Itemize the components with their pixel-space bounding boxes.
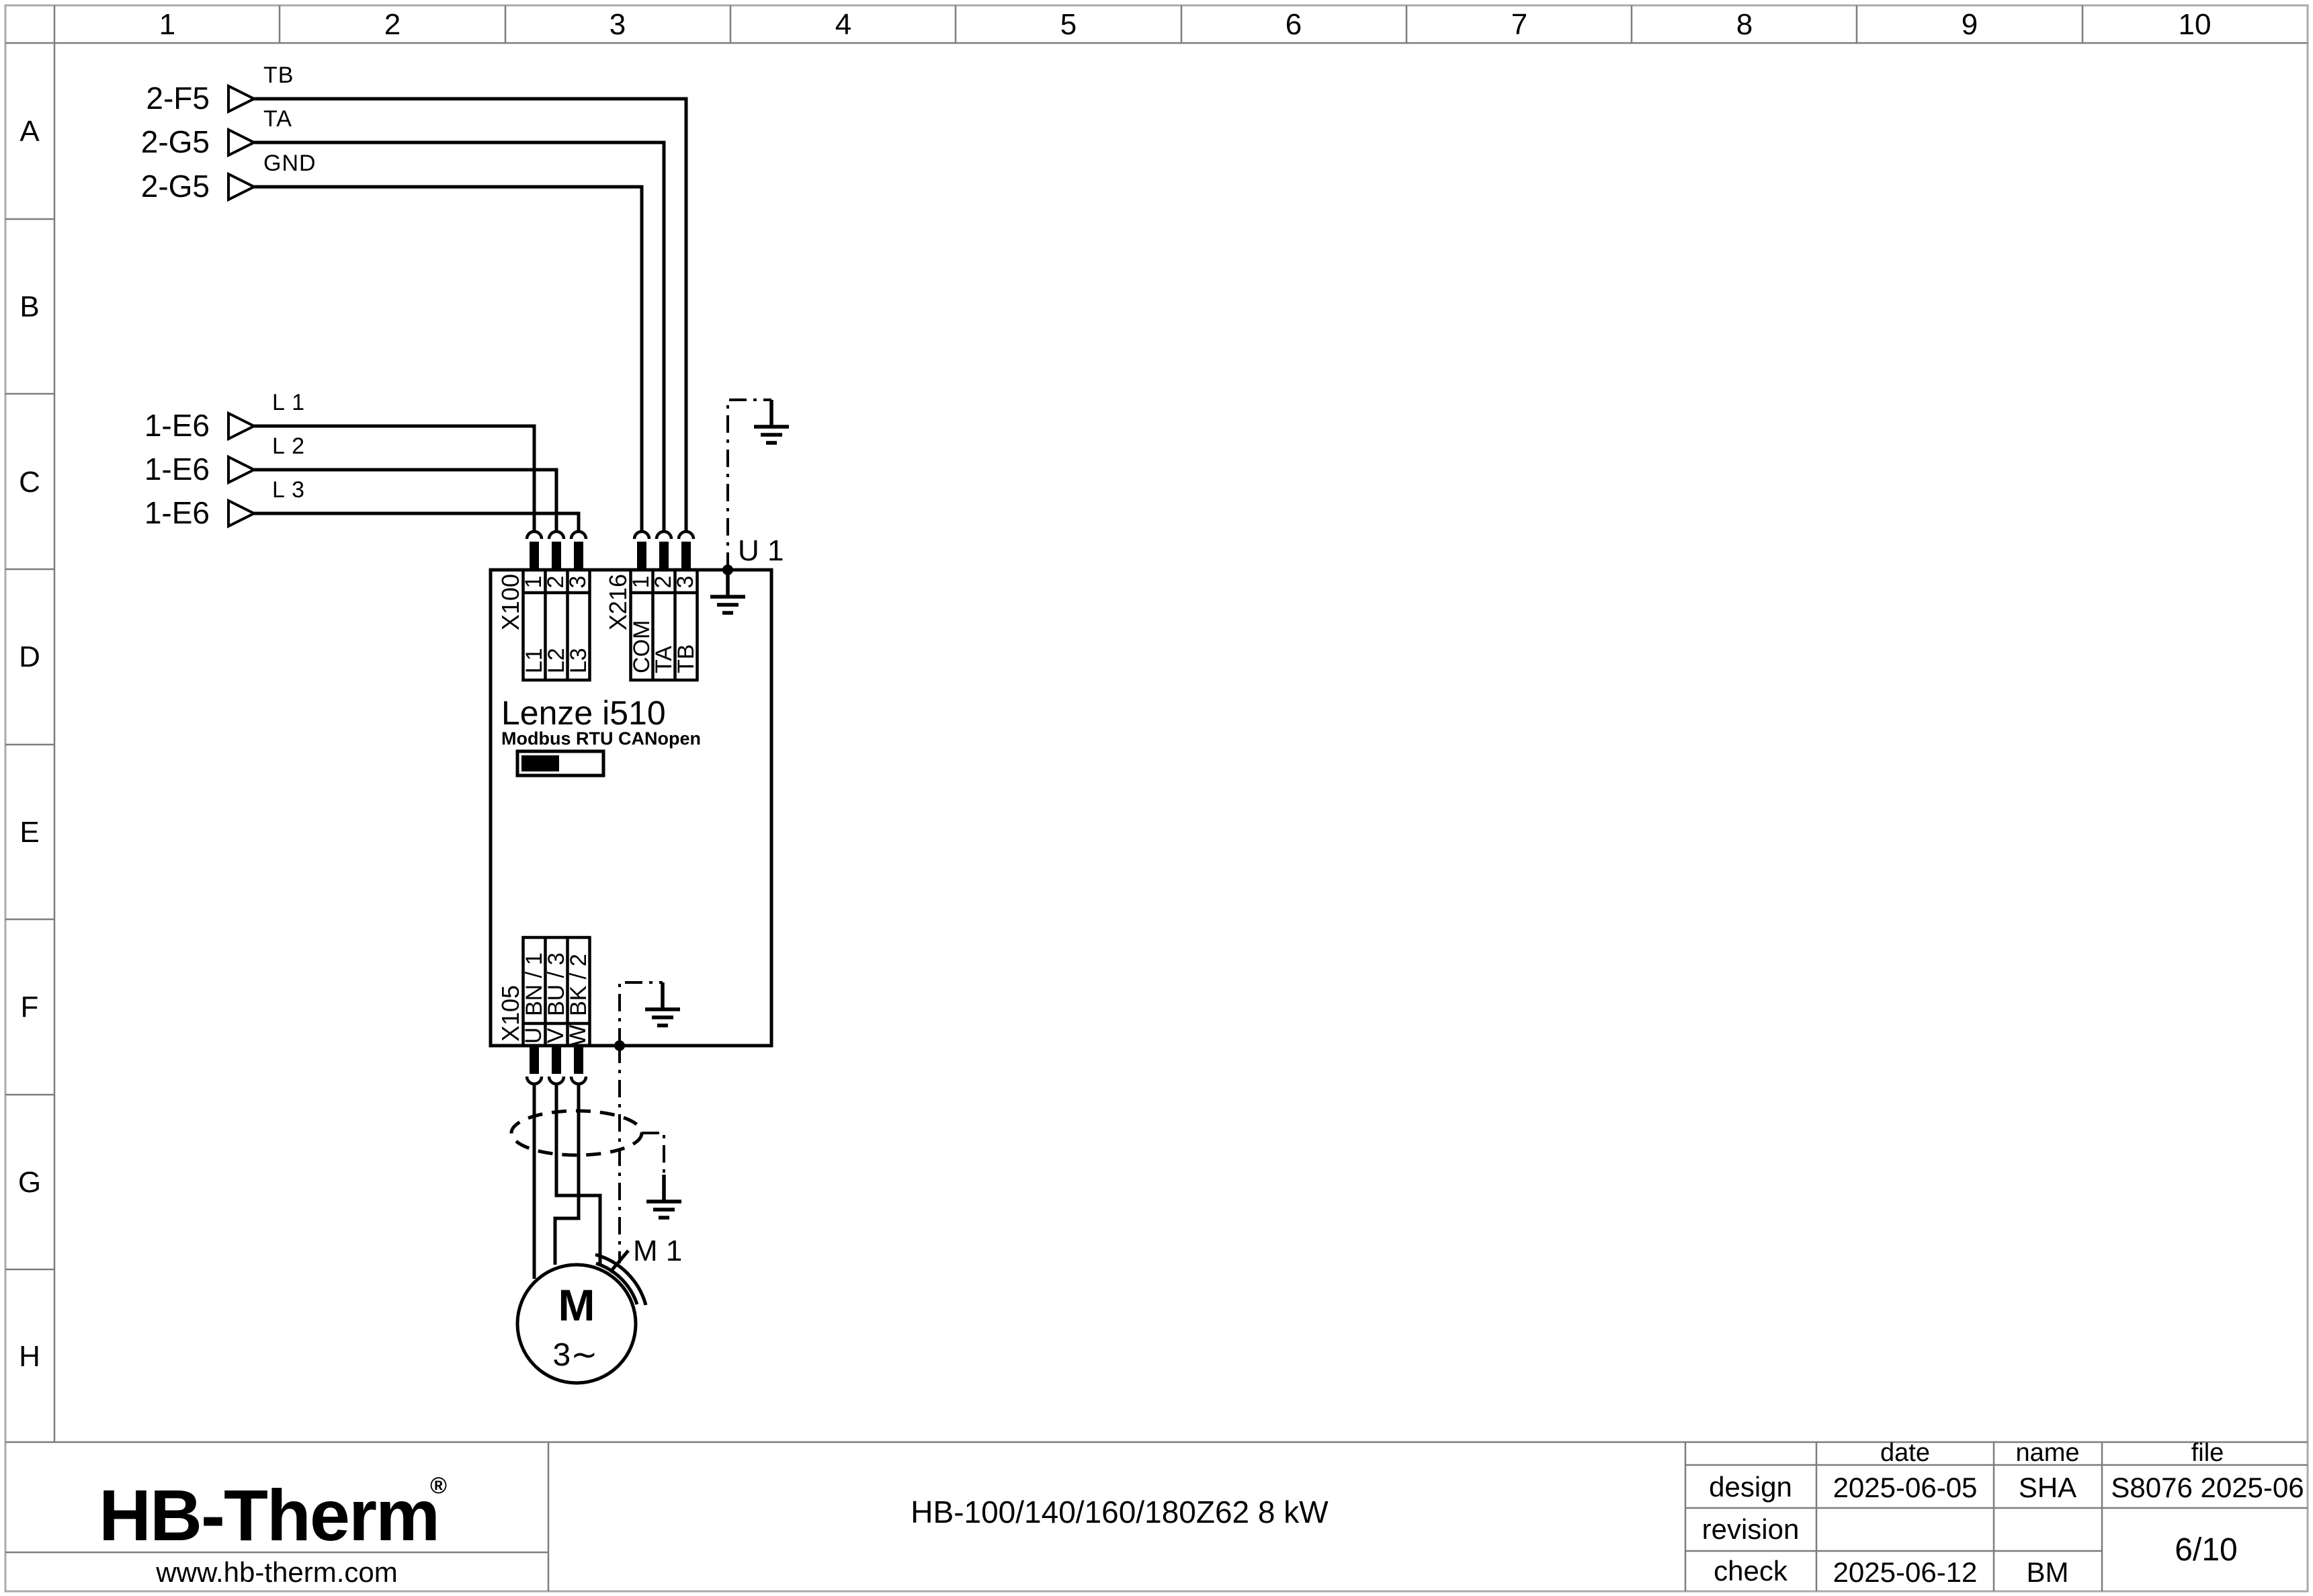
terminal-block-name: X100 [497, 574, 524, 630]
terminal-block-x216: X216 1 2 3 COM TA TB [604, 570, 699, 680]
ruler-col-label: 9 [1962, 8, 1978, 41]
terminal-signal: BK / 2 [566, 954, 591, 1016]
ruler-row-label: C [19, 466, 40, 499]
column-header-file: file [2191, 1439, 2224, 1467]
reference-tag: 1-E6 [144, 495, 210, 530]
reference-arrow-icon [228, 413, 254, 439]
design-name: SHA [2019, 1472, 2076, 1503]
wire-label: L 1 [272, 390, 305, 415]
ruler-col-label: 7 [1511, 8, 1527, 41]
wire-label: L 3 [272, 477, 305, 503]
ruler-col-label: 8 [1736, 8, 1753, 41]
ruler-col-label: 5 [1060, 8, 1077, 41]
reference-arrow-icon [228, 174, 254, 200]
plug-connector-icon [571, 532, 586, 570]
ruler-col-label: 1 [159, 8, 175, 41]
wire-tb [254, 99, 686, 532]
reference-arrow-icon [228, 86, 254, 112]
plug-connector-icon [679, 532, 693, 570]
terminal-pin: W [565, 1025, 591, 1046]
motor-phases: 3∼ [553, 1337, 598, 1373]
terminal-pin: 3 [673, 576, 698, 589]
column-header-date: date [1880, 1439, 1930, 1467]
plug-connector-icon [549, 532, 564, 570]
plug-connector-icon [549, 1046, 564, 1084]
ruler-row-label: H [19, 1340, 40, 1373]
reference-tag: 1-E6 [144, 408, 210, 443]
reference-tag: 2-G5 [141, 124, 210, 159]
terminal-signal: L3 [566, 648, 591, 673]
terminal-block-name: X216 [604, 574, 632, 630]
wire-ta [254, 142, 664, 532]
ruler-col-label: 2 [384, 8, 401, 41]
reference-arrow-icon [228, 130, 254, 155]
drive-designator: U 1 [738, 534, 784, 567]
row-label-revision: revision [1702, 1513, 1800, 1545]
reference-ta: 2-G5 TA [141, 106, 664, 532]
wire-l3 [254, 513, 579, 532]
ruler-row-label: E [19, 816, 39, 849]
plug-connector-icon [527, 532, 542, 570]
earth-ground-icon [754, 400, 789, 443]
earth-ground-icon [646, 1175, 681, 1218]
terminal-block-name: X105 [497, 985, 524, 1042]
wire-label: L 2 [272, 433, 305, 459]
ruler-col-label: 10 [2179, 8, 2212, 41]
pe-link [642, 1133, 664, 1175]
reference-tag: 2-F5 [146, 81, 210, 116]
title-block: HB-Therm ® www.hb-therm.com HB-100/140/1… [5, 1439, 2308, 1591]
plug-connector-icon [527, 1046, 542, 1084]
pe-link [620, 982, 663, 1046]
wire-label: GND [263, 151, 317, 176]
reference-tag: 1-E6 [144, 452, 210, 487]
earth-ground-icon [645, 982, 680, 1025]
drive-name: Lenze i510 [501, 694, 666, 732]
ruler-col-label: 3 [609, 8, 626, 41]
plug-connector-icon [657, 532, 671, 570]
ruler-row-label: D [19, 640, 40, 673]
plug-connector-icon [634, 532, 649, 570]
motor-designator: M 1 [633, 1234, 682, 1267]
reference-arrow-icon [228, 457, 254, 482]
terminal-block-x105: X105 BN / 1 BU / 3 BK / 2 U V W [497, 937, 591, 1046]
ruler-col-label: 4 [835, 8, 851, 41]
ruler-row-label: B [19, 290, 39, 323]
ruler-row-label: G [18, 1166, 41, 1199]
brand-logo-text: HB-Therm [99, 1474, 439, 1556]
wire-gnd [254, 187, 642, 532]
ruler-row-label: A [19, 115, 40, 148]
brand-logo: HB-Therm ® [99, 1473, 447, 1556]
row-label-design: design [1709, 1471, 1792, 1503]
reference-gnd: 2-G5 GND [141, 151, 642, 532]
file-id: S8076 2025-06 [2111, 1472, 2304, 1503]
reference-tag: 2-G5 [141, 169, 210, 204]
drive-u1: U 1 Lenze i510 Modbus RTU CANopen X100 1… [491, 534, 784, 1046]
top-ruler: 1 2 3 4 5 6 7 8 9 10 [159, 5, 2212, 43]
schematic-sheet: 1 2 3 4 5 6 7 8 9 10 A B C D E F G H 2-F… [0, 0, 2313, 1596]
registered-mark: ® [430, 1473, 447, 1499]
drive-subtitle: Modbus RTU CANopen [501, 728, 701, 749]
wire-label: TB [263, 62, 294, 88]
ruler-col-label: 6 [1286, 8, 1302, 41]
product-title: HB-100/140/160/180Z62 8 kW [911, 1495, 1329, 1529]
top-ruler-gridlines [280, 5, 2083, 43]
wire-label: TA [263, 106, 292, 132]
design-date: 2025-06-05 [1833, 1472, 1978, 1503]
terminal-block-x100: X100 1 2 3 L1 L2 L3 [497, 570, 591, 680]
reference-arrow-icon [228, 501, 254, 526]
website-link: www.hb-therm.com [155, 1556, 397, 1588]
earth-ground-icon [710, 570, 745, 613]
sheet-frame [5, 5, 2308, 1591]
left-ruler: A B C D E F G H [5, 115, 54, 1373]
column-header-name: name [2015, 1439, 2079, 1467]
terminal-pin: 3 [565, 576, 591, 589]
motor-circuit: M 1 M 3∼ [511, 1084, 682, 1383]
comm-switch-icon [517, 751, 603, 775]
motor-symbol: M [558, 1280, 595, 1330]
page-number: 6/10 [2175, 1532, 2237, 1568]
check-date: 2025-06-12 [1833, 1556, 1978, 1588]
left-ruler-gridlines [5, 219, 54, 1269]
cable-shield-icon [511, 1111, 642, 1155]
check-name: BM [2027, 1556, 2069, 1588]
plug-connector-icon [571, 1046, 586, 1084]
reference-tb: 2-F5 TB [146, 62, 686, 532]
row-label-check: check [1714, 1555, 1788, 1587]
ruler-row-label: F [21, 991, 39, 1023]
terminal-signal: TB [673, 644, 699, 673]
